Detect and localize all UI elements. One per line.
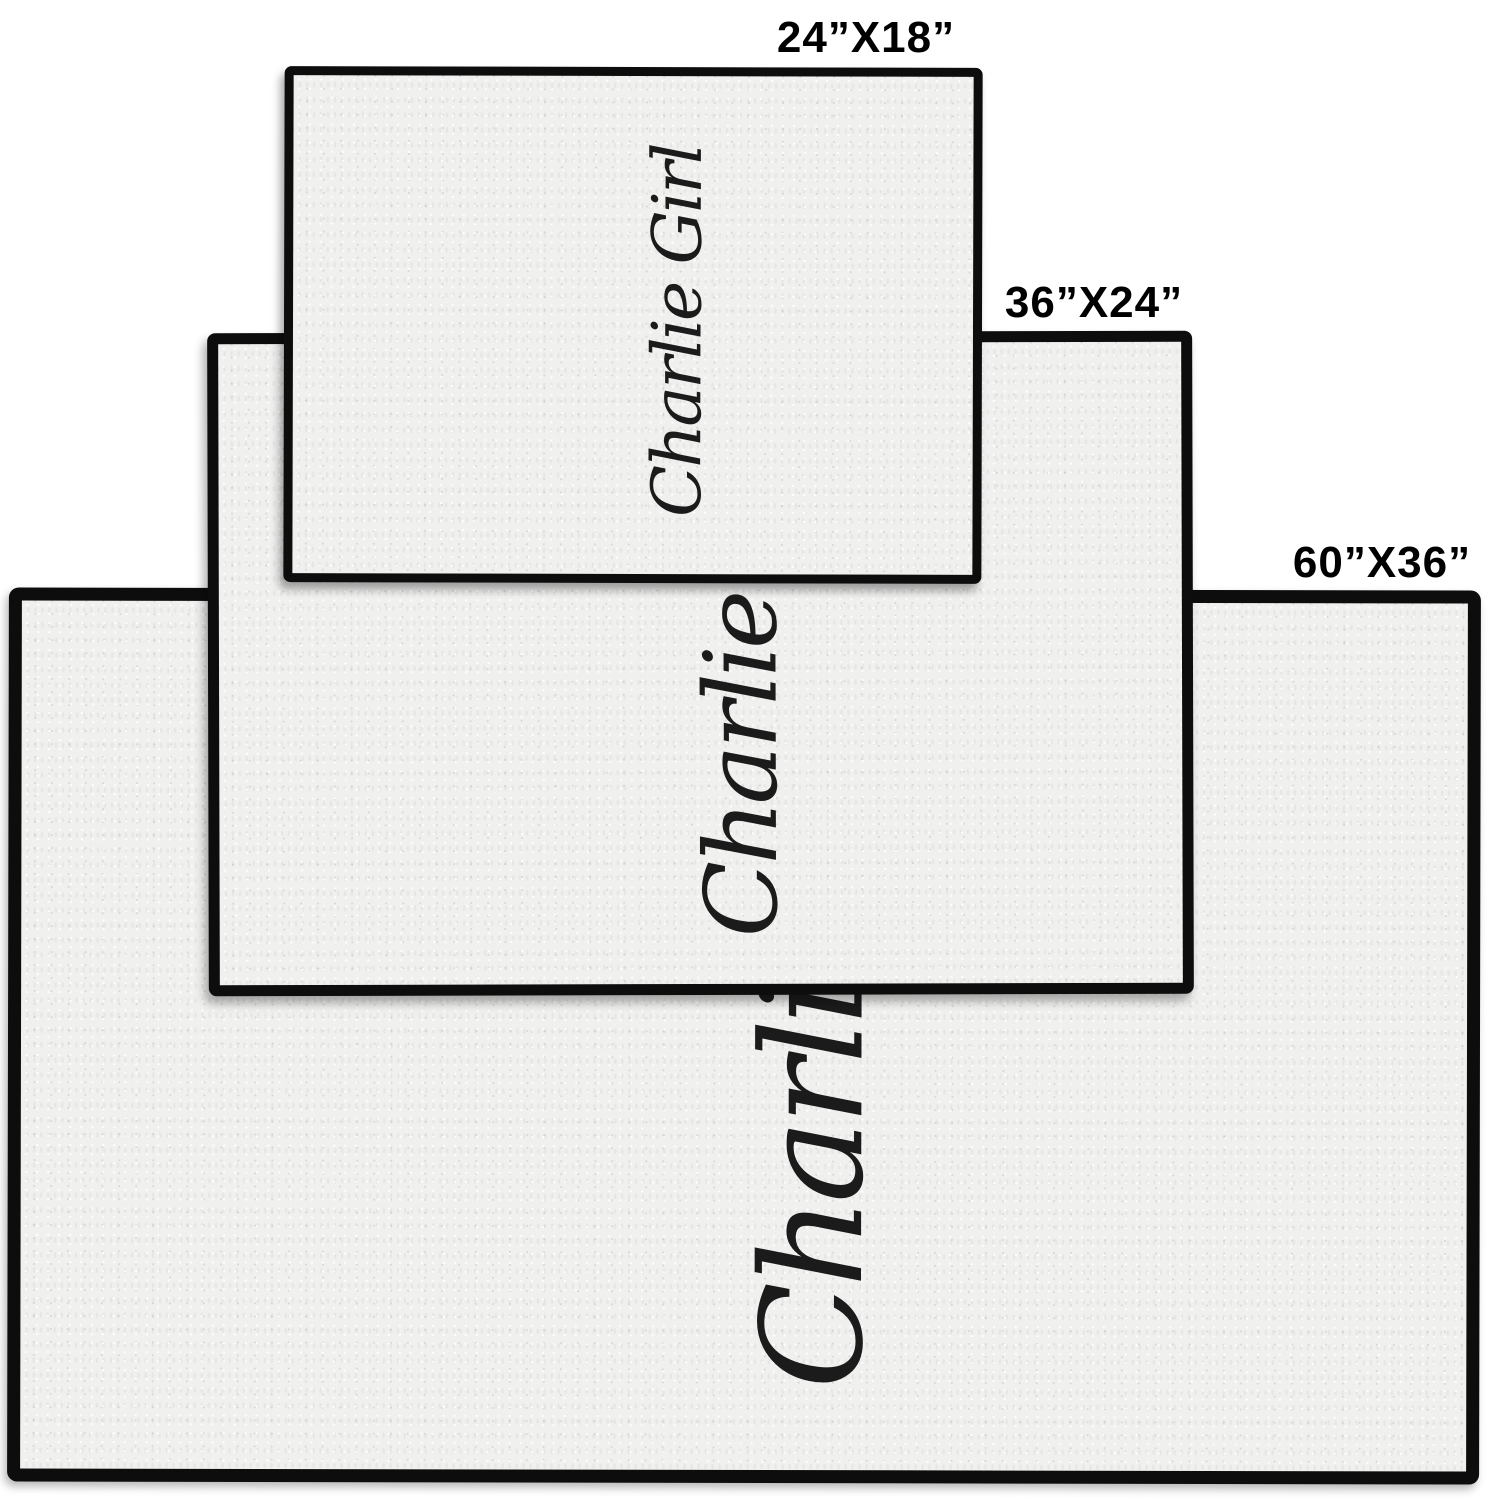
personalization-text-24x18: Charlie Girl [638, 145, 718, 517]
size-label-60x36: 60”X36” [1293, 541, 1471, 585]
size-label-36x24: 36”X24” [1005, 281, 1183, 325]
size-label-24x18: 24”X18” [777, 16, 955, 60]
mat-preview-24x18: Charlie Girl [283, 66, 982, 584]
